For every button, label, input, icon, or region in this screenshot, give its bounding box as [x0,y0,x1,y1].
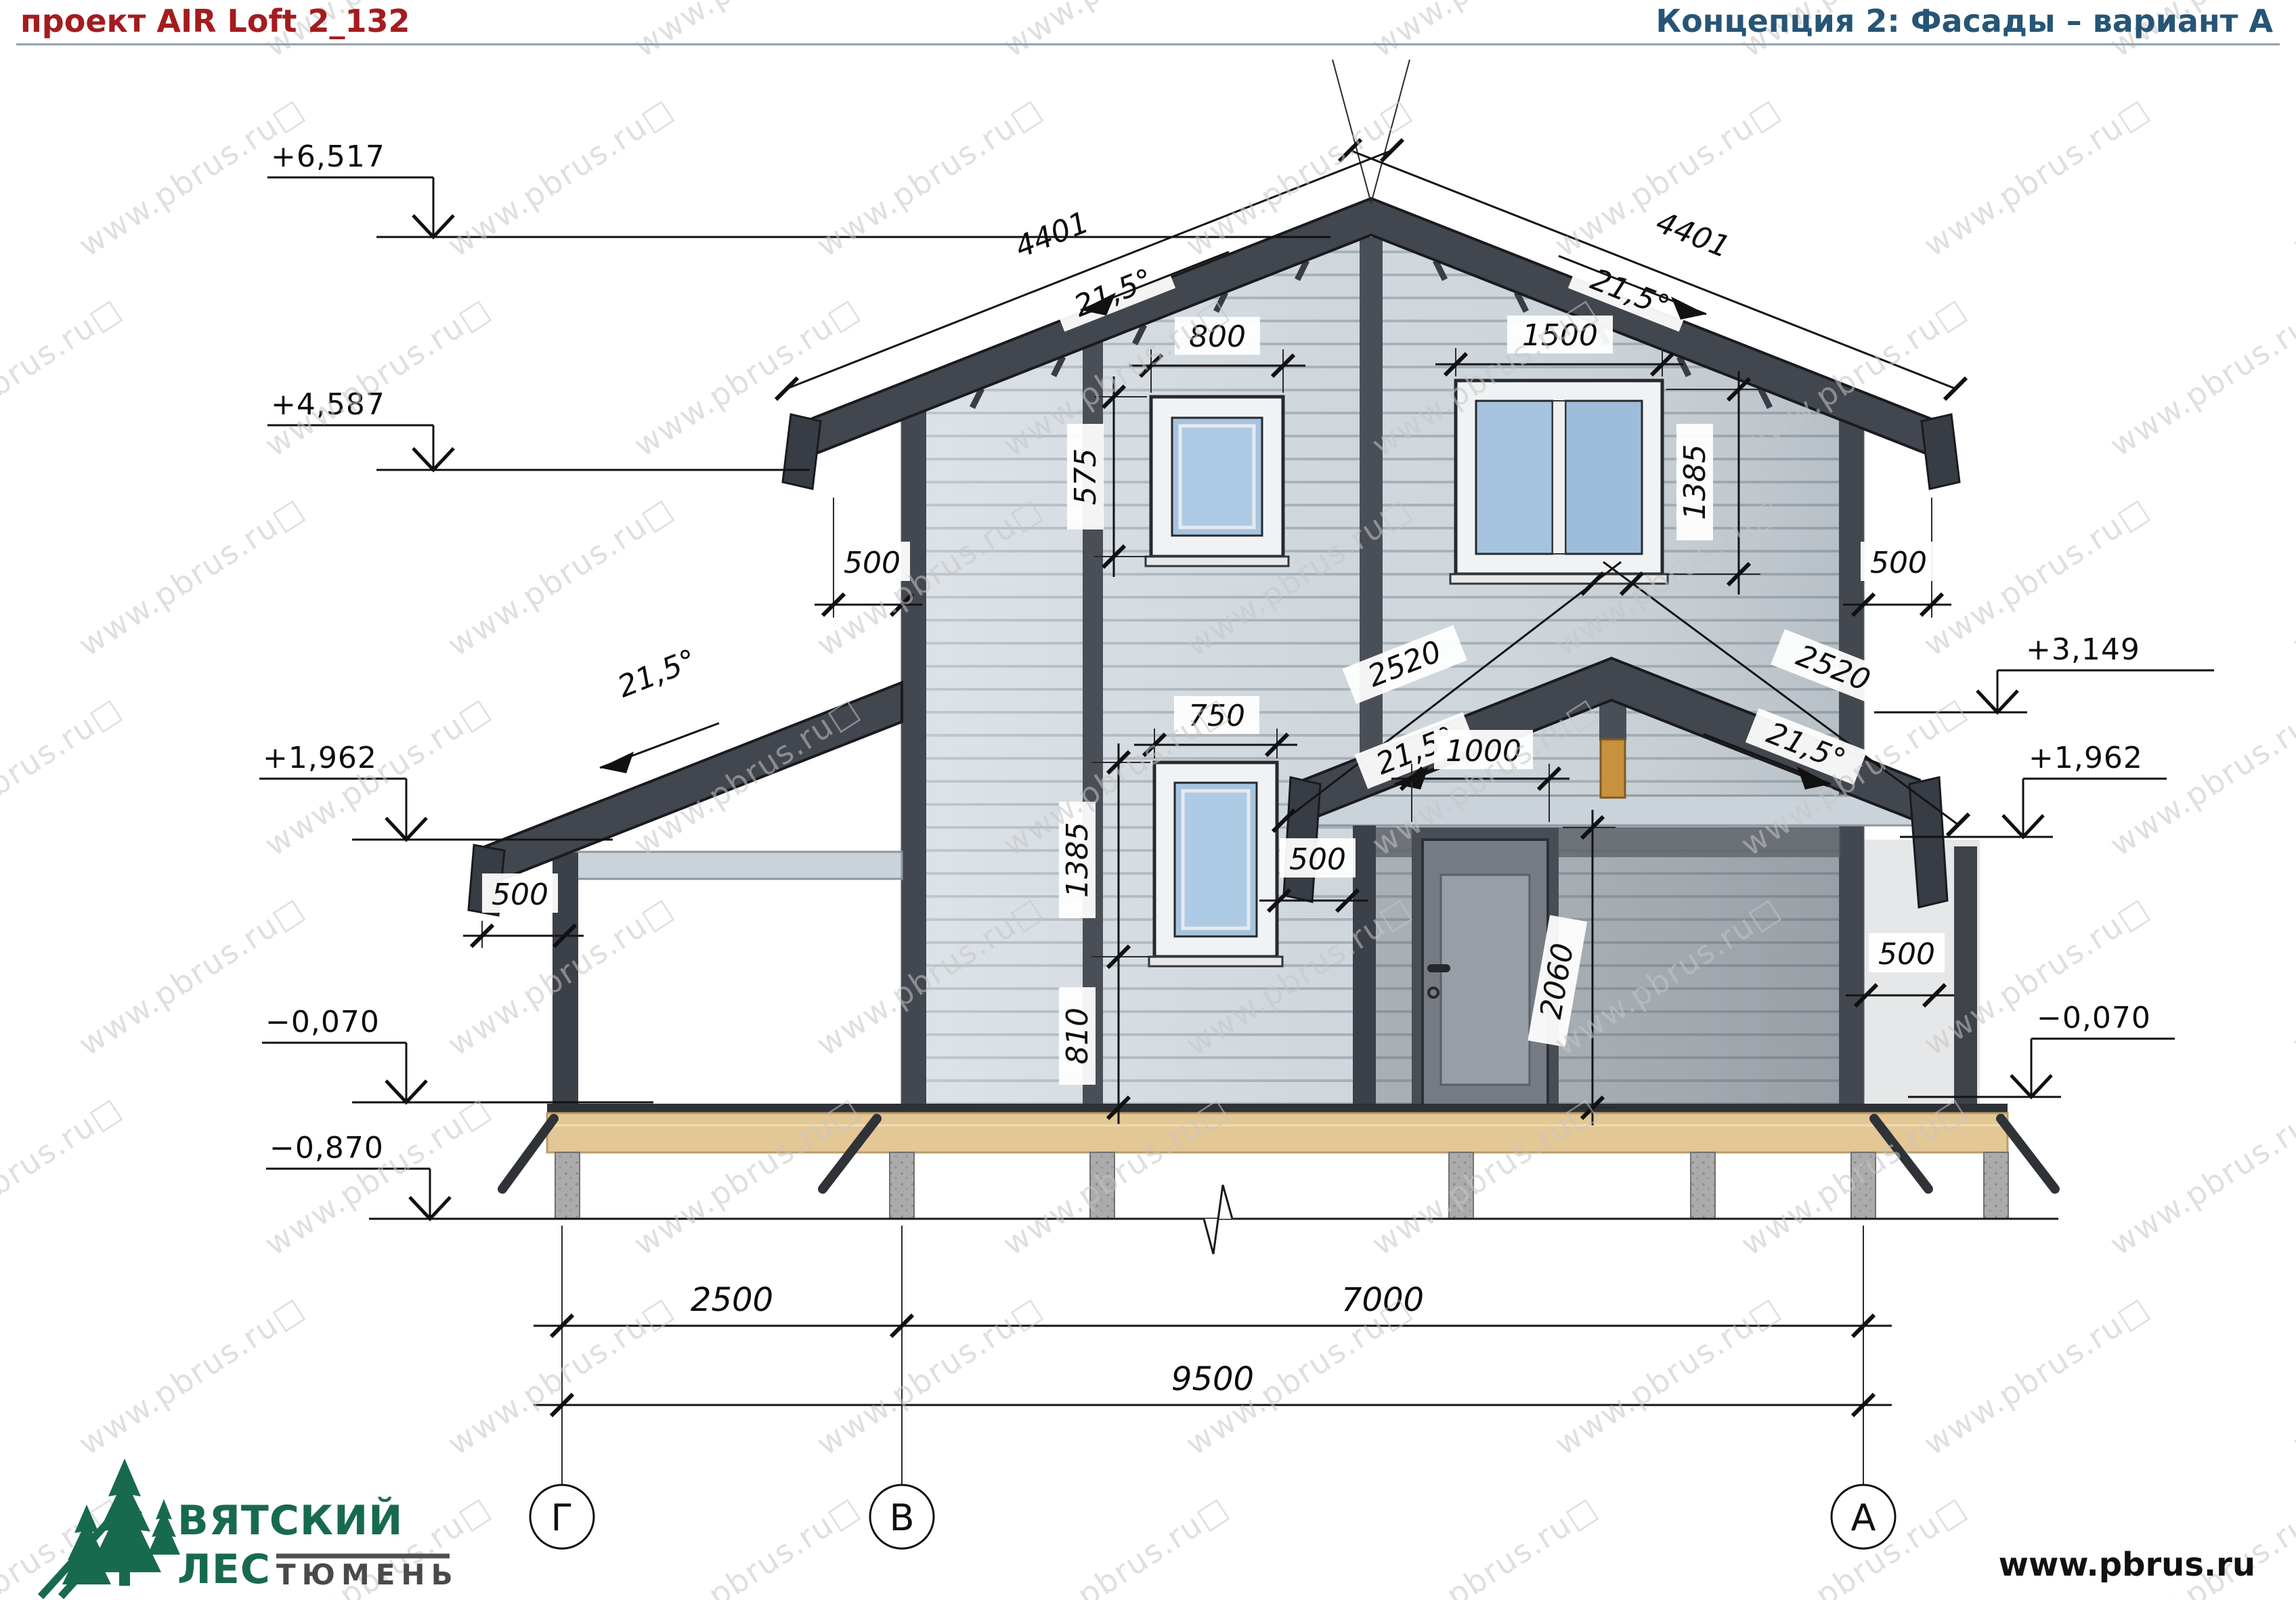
door-handle [1427,964,1450,972]
axis-g: Г [551,1496,573,1539]
logo-word2: ЛЕС [177,1546,271,1593]
corner-trim-left [902,412,926,1112]
level-ridge: +6,517 [271,139,385,174]
dim-span-gv: 2500 [691,1281,773,1319]
dim-low-window-height: 1385 [1060,822,1095,898]
dim-roof-right: 4401 [1651,205,1735,265]
header-divider [16,43,2280,45]
level-floor-left: −0,070 [265,1005,380,1039]
level-floor-right: −0,070 [2037,1001,2151,1035]
veranda-beam [576,852,902,879]
foundation-piers [555,1152,2008,1219]
level-canopy: +3,149 [2026,632,2140,667]
dim-small-window-height: 575 [1068,448,1103,505]
logo-trees [62,1458,180,1586]
porch-king-post [1601,739,1625,798]
dim-eave-left: 500 [844,546,901,580]
dim-big-window-width: 1500 [1522,318,1598,353]
window-large-upper [1450,381,1668,584]
dim-span-va: 7000 [1341,1281,1424,1319]
porch-post-left [1353,825,1376,1112]
roof-drip-right [1922,414,1959,489]
level-eave: +4,587 [271,387,385,422]
level-ground: −0,870 [269,1131,384,1165]
dim-porch-left: 500 [1289,842,1346,877]
dim-eave-right: 500 [1870,546,1927,580]
dim-porch-right: 500 [1878,937,1935,972]
axis-v: В [889,1496,914,1539]
axis-a: А [1851,1496,1876,1539]
porch-king-post-cap [1599,701,1626,741]
angle-veranda: 21,5° [613,643,701,704]
website-link: www.pbrus.ru [1999,1546,2255,1584]
level-porch-left: +1,962 [263,741,377,775]
window-lower [1149,762,1282,966]
axis-bubbles: Г В А [530,1485,1895,1549]
dim-low-window-width: 750 [1188,699,1245,733]
dim-small-window-width: 800 [1189,320,1246,354]
dim-door-width: 1000 [1446,734,1521,769]
dim-low-window-sill: 810 [1060,1008,1095,1064]
dim-veranda-eave: 500 [492,878,548,912]
roof-drip-left [783,414,821,489]
deck-boards [547,1113,2008,1152]
deck-edge [547,1104,2008,1113]
entrance-door [1412,827,1559,1112]
page-title-project: проект AIR Loft 2_132 [20,3,410,39]
porch-header-beam [1308,796,1923,825]
dim-span-total: 9500 [1171,1360,1254,1398]
deck-and-foundation [501,1104,2058,1254]
company-logo: ВЯТСКИЙ ЛЕС ТЮМЕНЬ [38,1440,498,1599]
logo-word1: ВЯТСКИЙ [177,1496,403,1544]
page-title-concept: Концепция 2: Фасады – вариант А [1655,3,2273,39]
level-porch-right: +1,962 [2029,741,2143,775]
window-small-upper [1146,397,1288,566]
facade-drawing: 4401 21,5° 4401 21,5° 800 [0,0,2296,1600]
dim-roof-left: 4401 [1010,205,1093,265]
logo-word3: ТЮМЕНЬ [276,1558,459,1591]
dim-big-window-height: 1385 [1678,444,1712,520]
